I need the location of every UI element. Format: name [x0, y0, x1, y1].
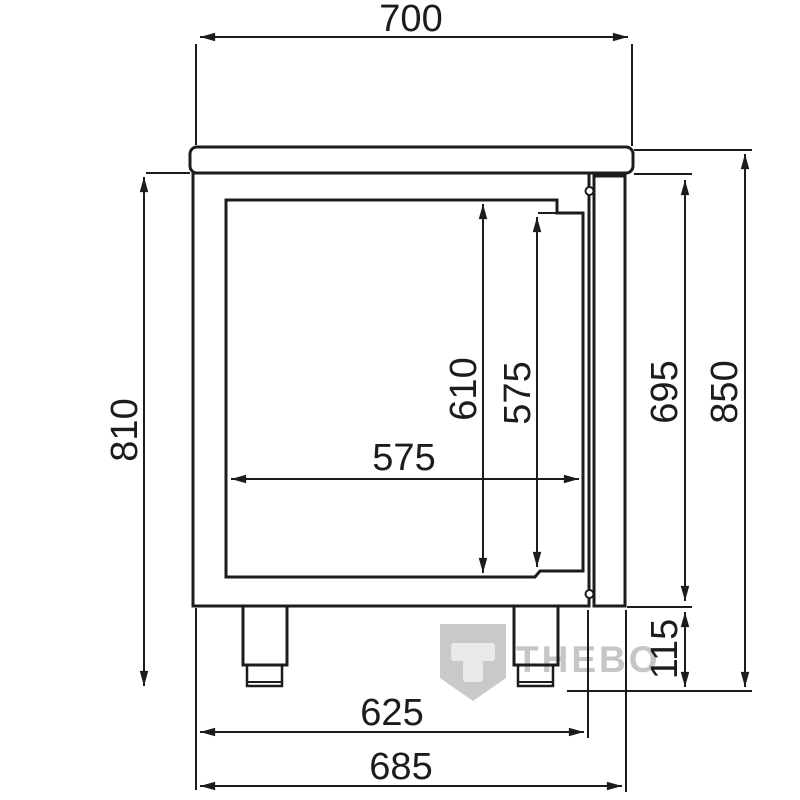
dim-label-leg-height: 115 — [644, 619, 686, 680]
counter-unit — [190, 147, 633, 686]
dim-label-inner-cavity-width: 575 — [372, 437, 435, 479]
dim-label-top-width: 700 — [379, 0, 442, 40]
countertop — [190, 147, 633, 173]
watermark: THEBO — [440, 624, 661, 701]
leg-front — [243, 606, 287, 686]
dim-label-overall-depth: 685 — [369, 746, 432, 788]
dim-label-overall-height: 850 — [704, 360, 746, 423]
dim-label-base-width: 625 — [360, 692, 423, 734]
hinge-top — [586, 187, 594, 195]
dim-label-body-with-door-height: 695 — [644, 360, 686, 423]
dim-label-door-opening-height: 575 — [497, 361, 539, 424]
dimension-labels: 700 810 610 575 575 695 850 115 625 685 — [104, 0, 746, 788]
drawing-canvas: THEBO — [0, 0, 800, 800]
leg-front-upper — [243, 606, 287, 665]
technical-drawing-page: THEBO — [0, 0, 800, 800]
dim-label-overall-left-height: 810 — [104, 398, 146, 461]
door-panel — [594, 176, 625, 606]
dim-label-inner-cavity-height: 610 — [443, 357, 485, 420]
hinge-bottom — [586, 590, 594, 598]
